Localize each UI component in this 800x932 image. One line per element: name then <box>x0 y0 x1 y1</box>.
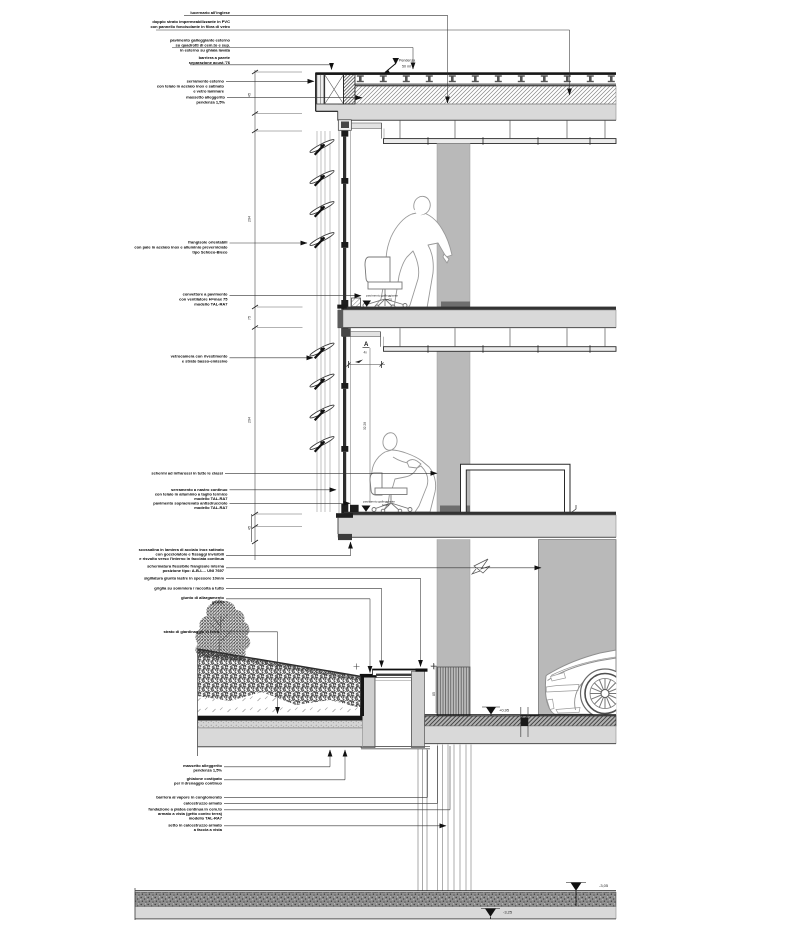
svg-text:giunto: giunto <box>212 600 225 605</box>
svg-text:45: 45 <box>248 526 252 530</box>
svg-text:85: 85 <box>432 692 436 696</box>
svg-text:h=05: h=05 <box>385 298 392 302</box>
svg-text:calcestruzzo armato: calcestruzzo armato <box>184 801 223 806</box>
svg-text:modello TAL-RA7: modello TAL-RA7 <box>189 816 223 821</box>
svg-text:e strato basso-emissivo: e strato basso-emissivo <box>182 359 228 364</box>
svg-text:+0,95: +0,95 <box>499 708 510 713</box>
svg-text:modello TAL-RA7: modello TAL-RA7 <box>194 302 228 307</box>
svg-text:pavimento galleggiante: pavimento galleggiante <box>363 499 395 503</box>
svg-text:con pannello fonoisolante in f: con pannello fonoisolante in fibra di ve… <box>150 24 230 29</box>
svg-text:in esterno su ghiaia lavata: in esterno su ghiaia lavata <box>180 48 231 53</box>
svg-text:separazione acust.'76: separazione acust.'76 <box>189 60 231 65</box>
svg-text:45: 45 <box>248 93 252 97</box>
svg-text:pendenza 1,5%: pendenza 1,5% <box>193 768 222 773</box>
svg-text:50 ml: 50 ml <box>402 65 411 69</box>
svg-text:e risvolto verso l'interno in: e risvolto verso l'interno in facciata c… <box>139 556 225 561</box>
svg-text:modello TAL-RA7: modello TAL-RA7 <box>194 505 228 510</box>
svg-text:schermi ad infrarossi in tutte: schermi ad infrarossi in tutte le classi <box>151 470 223 475</box>
svg-text:32 28: 32 28 <box>363 422 367 430</box>
svg-text:tipo Schüco-Bleco: tipo Schüco-Bleco <box>192 250 228 255</box>
svg-text:A: A <box>364 342 369 348</box>
svg-text:294: 294 <box>248 417 252 423</box>
svg-text:e vetro laminare: e vetro laminare <box>193 89 224 94</box>
svg-text:pendenza 1,5%: pendenza 1,5% <box>196 100 225 105</box>
svg-text:h=05: h=05 <box>382 503 389 507</box>
svg-text:per il drenaggio continuo: per il drenaggio continuo <box>174 781 223 786</box>
svg-text:-3,25: -3,25 <box>503 910 513 915</box>
svg-text:pavimento galleggiante: pavimento galleggiante <box>366 294 398 298</box>
svg-text:lucernario all'inglese: lucernario all'inglese <box>190 10 230 15</box>
svg-text:barriera al vapore in conglome: barriera al vapore in conglomerato <box>156 795 222 800</box>
svg-text:strato di giardinaggio in terr: strato di giardinaggio in terra <box>163 629 219 634</box>
svg-text:4x: 4x <box>364 351 368 355</box>
svg-text:sigillatura giunto lastre in s: sigillatura giunto lastre in spessore 10… <box>144 576 224 581</box>
svg-text:posizione tipo: A-B-L... UNI: posizione tipo: A-B-L... UNI 7697 <box>163 568 225 573</box>
svg-text:griglia su sommiera / raccolta: griglia su sommiera / raccolta a tutto <box>154 586 224 591</box>
svg-text:294: 294 <box>248 216 252 222</box>
svg-text:-3,05: -3,05 <box>599 883 609 888</box>
svg-text:75: 75 <box>248 316 252 320</box>
svg-text:a faccia a vista: a faccia a vista <box>194 827 223 832</box>
